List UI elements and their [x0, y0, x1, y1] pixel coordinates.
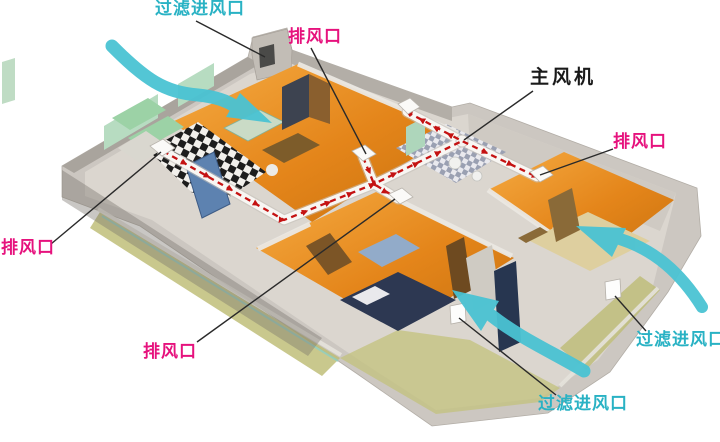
label-exhaust-top: 排风口 — [288, 28, 342, 46]
apartment-isometric-illustration — [0, 0, 720, 442]
label-exhaust-right: 排风口 — [613, 133, 667, 151]
label-exhaust-bottom: 排风口 — [143, 343, 197, 361]
label-filtered-inlet-right: 过滤进风口 — [636, 331, 720, 349]
label-exhaust-left: 排风口 — [1, 239, 55, 257]
label-filtered-inlet-top: 过滤进风口 — [155, 0, 245, 18]
ventilation-diagram: 过滤进风口 排风口 主风机 排风口 排风口 排风口 过滤进风口 过滤进风口 — [0, 0, 720, 442]
label-main-fan: 主风机 — [530, 68, 596, 86]
label-filtered-inlet-bottom: 过滤进风口 — [538, 395, 628, 413]
